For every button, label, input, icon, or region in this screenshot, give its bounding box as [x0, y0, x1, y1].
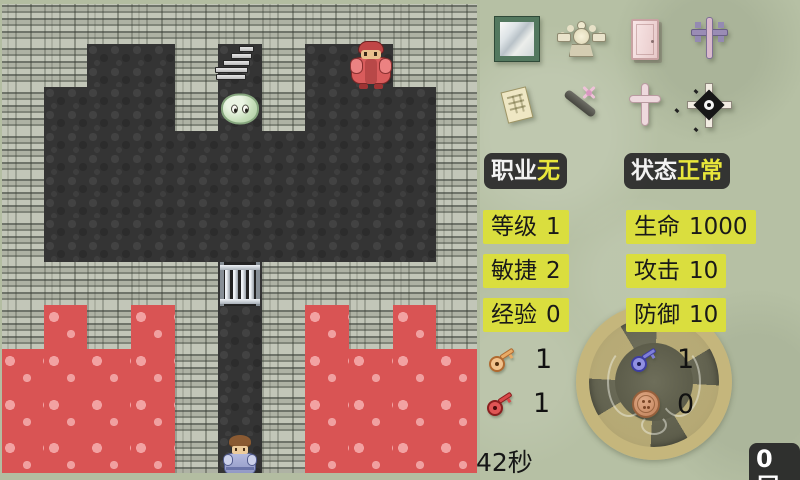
tile-light-floor[interactable] — [349, 262, 393, 306]
stat-badge-attack: 攻击10 — [626, 254, 726, 288]
stair-step — [216, 74, 246, 80]
tile-light-floor[interactable] — [436, 131, 480, 175]
slime-eye — [242, 105, 249, 114]
gate-bar — [225, 265, 230, 303]
tile-light-floor[interactable] — [131, 0, 175, 44]
stair-step — [215, 67, 248, 73]
tile-light-floor[interactable] — [349, 0, 393, 44]
tile-light-floor[interactable] — [0, 0, 44, 44]
tile-light-floor[interactable] — [436, 44, 480, 88]
hero-belt — [226, 467, 254, 470]
tile-light-floor[interactable] — [436, 218, 480, 262]
coin-row: 0 — [632, 388, 694, 420]
map-edge-left — [0, 0, 2, 480]
item-slot-winged-medal[interactable] — [552, 10, 610, 68]
tile-dark-floor[interactable] — [262, 175, 306, 219]
tile-light-floor[interactable] — [393, 44, 437, 88]
item-slot-compass-star[interactable] — [680, 76, 738, 134]
tile-dark-floor[interactable] — [87, 175, 131, 219]
red-key-icon — [486, 388, 516, 418]
blue-key-icon — [630, 344, 660, 374]
tile-red-guard-monster[interactable] — [349, 44, 393, 88]
tile-dark-floor[interactable] — [305, 218, 349, 262]
blue-key-row: 1 — [630, 343, 694, 375]
tile-dark-floor[interactable] — [305, 131, 349, 175]
item-slot-mirror[interactable] — [488, 10, 546, 68]
red-key-row: 1 — [486, 387, 550, 419]
item-slot-pickaxe[interactable] — [552, 76, 610, 134]
tile-light-floor[interactable] — [175, 44, 219, 88]
tile-lava[interactable] — [131, 393, 175, 437]
tile-dark-floor[interactable] — [349, 87, 393, 131]
tile-light-floor[interactable] — [87, 305, 131, 349]
purple-cross-item-icon — [687, 16, 732, 62]
tile-dark-floor[interactable] — [393, 131, 437, 175]
tile-dark-floor[interactable] — [262, 131, 306, 175]
timer-label: 42秒 — [476, 449, 533, 477]
stair-step — [231, 53, 252, 59]
tile-light-floor[interactable] — [0, 218, 44, 262]
tile-light-floor[interactable] — [436, 305, 480, 349]
guard-shoulder — [350, 58, 363, 74]
tile-dark-floor[interactable] — [218, 349, 262, 393]
tile-dark-floor[interactable] — [87, 131, 131, 175]
tile-lava[interactable] — [0, 393, 44, 437]
tile-dark-floor[interactable] — [44, 175, 88, 219]
tile-dark-floor[interactable] — [305, 175, 349, 219]
tile-lava[interactable] — [44, 305, 88, 349]
status-value: 正常 — [677, 160, 723, 183]
stat-badge-level: 等级1 — [483, 210, 569, 244]
compass-star-item-icon — [687, 83, 732, 128]
tile-light-floor[interactable] — [44, 44, 88, 88]
tile-lava[interactable] — [305, 349, 349, 393]
red-guard-monster[interactable] — [350, 41, 392, 89]
tile-dark-floor[interactable] — [175, 218, 219, 262]
mirror-item-icon — [495, 17, 539, 61]
hero-shoulder — [223, 454, 233, 466]
tile-lava[interactable] — [305, 393, 349, 437]
tile-light-floor[interactable] — [305, 0, 349, 44]
stat-badge-hp: 生命1000 — [626, 210, 756, 244]
job-label: 职业 — [491, 160, 537, 183]
tile-light-floor[interactable] — [175, 393, 219, 437]
game-screen: 职业无 状态正常 等级1 生命1000 敏捷2 攻击10 经验0 防御10 1 — [0, 0, 800, 480]
tile-dark-floor[interactable] — [87, 44, 131, 88]
tile-light-floor[interactable] — [0, 175, 44, 219]
tile-dark-floor[interactable] — [218, 175, 262, 219]
gate-bar — [249, 265, 254, 303]
tile-light-floor[interactable] — [262, 87, 306, 131]
map-edge-right — [477, 0, 480, 480]
tile-lava[interactable] — [436, 349, 480, 393]
stat-badge-agility: 敏捷2 — [483, 254, 569, 288]
tile-dark-floor[interactable] — [349, 131, 393, 175]
tile-light-floor[interactable] — [175, 305, 219, 349]
tile-light-floor[interactable] — [175, 262, 219, 306]
tile-dark-floor[interactable] — [131, 131, 175, 175]
gate-rail — [220, 265, 260, 270]
tile-light-floor[interactable] — [393, 262, 437, 306]
tile-light-floor[interactable] — [262, 44, 306, 88]
tile-light-floor[interactable] — [131, 262, 175, 306]
slime-monster[interactable] — [221, 94, 259, 125]
iron-gate[interactable] — [220, 262, 260, 306]
item-slot-door[interactable] — [616, 10, 674, 68]
tile-lava[interactable] — [393, 393, 437, 437]
tile-dark-floor[interactable] — [131, 218, 175, 262]
stairs-up[interactable] — [220, 46, 260, 84]
tile-lava[interactable] — [44, 393, 88, 437]
tile-light-floor[interactable] — [305, 262, 349, 306]
tile-dark-floor[interactable] — [87, 218, 131, 262]
tile-light-floor[interactable] — [0, 87, 44, 131]
hero-face — [232, 446, 248, 454]
job-badge: 职业无 — [484, 153, 567, 189]
tile-dark-floor[interactable] — [218, 131, 262, 175]
map-edge-top — [0, 0, 480, 4]
tile-dark-floor[interactable] — [44, 87, 88, 131]
tile-light-floor[interactable] — [262, 262, 306, 306]
stat-badge-exp: 经验0 — [483, 298, 569, 332]
floor-map — [0, 0, 480, 480]
tile-lava[interactable] — [393, 305, 437, 349]
tile-light-floor[interactable] — [436, 262, 480, 306]
guard-shoulder — [379, 58, 392, 74]
tile-dark-floor[interactable] — [131, 175, 175, 219]
tile-light-floor[interactable] — [0, 262, 44, 306]
coin-icon — [632, 390, 660, 418]
tile-lava[interactable] — [131, 305, 175, 349]
tile-light-floor[interactable] — [262, 0, 306, 44]
yellow-key-row: 1 — [488, 343, 552, 375]
status-label: 状态 — [631, 160, 677, 183]
slime-eye — [231, 105, 238, 114]
tile-dark-floor[interactable] — [349, 218, 393, 262]
tile-lava[interactable] — [131, 349, 175, 393]
yellow-key-icon — [488, 344, 518, 374]
stair-step — [223, 60, 250, 66]
tile-light-floor[interactable] — [436, 0, 480, 44]
tile-lava[interactable] — [349, 393, 393, 437]
gate-bar — [241, 265, 246, 303]
tile-dark-floor[interactable] — [175, 175, 219, 219]
tile-lava[interactable] — [44, 349, 88, 393]
guard-robe-stripe — [365, 59, 377, 84]
item-slot-scroll[interactable] — [488, 76, 546, 134]
tile-dark-floor[interactable] — [218, 393, 262, 437]
tile-light-floor[interactable] — [393, 0, 437, 44]
tile-stairs-up[interactable] — [218, 44, 262, 88]
yellow-key-count: 1 — [535, 346, 552, 373]
tile-lava[interactable] — [393, 349, 437, 393]
red-key-count: 1 — [533, 390, 550, 417]
tile-dark-floor[interactable] — [393, 175, 437, 219]
blue-key-count: 1 — [677, 346, 694, 373]
tile-slime-monster[interactable] — [218, 87, 262, 131]
coin-count: 0 — [677, 391, 694, 418]
floor-badge: 0层 — [749, 443, 800, 480]
tile-light-floor[interactable] — [436, 87, 480, 131]
item-slot-purple-cross[interactable] — [680, 10, 738, 68]
tile-iron-gate[interactable] — [218, 262, 262, 306]
tile-light-floor[interactable] — [262, 393, 306, 437]
tile-light-floor[interactable] — [0, 131, 44, 175]
tile-light-floor[interactable] — [262, 349, 306, 393]
job-value: 无 — [537, 160, 560, 183]
tile-dark-floor[interactable] — [349, 175, 393, 219]
status-panel: 职业无 状态正常 等级1 生命1000 敏捷2 攻击10 经验0 防御10 1 — [480, 0, 800, 480]
door-item-icon — [631, 19, 659, 60]
map-grid — [0, 0, 480, 480]
pickaxe-item-icon — [558, 82, 604, 128]
tile-light-floor[interactable] — [218, 0, 262, 44]
scroll-item-icon — [501, 86, 534, 123]
tile-dark-floor[interactable] — [393, 87, 437, 131]
guard-face — [361, 50, 381, 59]
tile-light-floor[interactable] — [349, 305, 393, 349]
status-badge: 状态正常 — [624, 153, 730, 189]
tile-lava[interactable] — [87, 393, 131, 437]
gate-rail — [220, 299, 260, 304]
tile-light-floor[interactable] — [0, 44, 44, 88]
tile-lava[interactable] — [349, 349, 393, 393]
tile-dark-floor[interactable] — [131, 44, 175, 88]
tile-dark-floor[interactable] — [218, 218, 262, 262]
tile-light-floor[interactable] — [44, 262, 88, 306]
stat-badge-defense: 防御10 — [626, 298, 726, 332]
tile-dark-floor[interactable] — [44, 218, 88, 262]
tile-dark-floor[interactable] — [175, 131, 219, 175]
tile-dark-floor[interactable] — [305, 87, 349, 131]
pink-cross-item-icon — [625, 82, 665, 128]
hero-shoulder — [247, 454, 257, 466]
tile-dark-floor[interactable] — [44, 131, 88, 175]
tile-lava[interactable] — [0, 349, 44, 393]
tile-light-floor[interactable] — [87, 0, 131, 44]
guard-foot — [359, 84, 368, 89]
item-slot-pink-cross[interactable] — [616, 76, 674, 134]
tile-lava[interactable] — [305, 305, 349, 349]
tile-light-floor[interactable] — [175, 87, 219, 131]
tile-dark-floor[interactable] — [393, 218, 437, 262]
winged-medal-item-icon — [557, 19, 606, 59]
tile-dark-floor[interactable] — [87, 87, 131, 131]
tile-dark-floor[interactable] — [262, 218, 306, 262]
tile-light-floor[interactable] — [436, 175, 480, 219]
tile-lava[interactable] — [87, 349, 131, 393]
tile-light-floor[interactable] — [175, 349, 219, 393]
tile-light-floor[interactable] — [44, 0, 88, 44]
tile-light-floor[interactable] — [262, 305, 306, 349]
tile-dark-floor[interactable] — [305, 44, 349, 88]
tile-dark-floor[interactable] — [131, 87, 175, 131]
tile-dark-floor[interactable] — [218, 305, 262, 349]
guard-foot — [374, 84, 383, 89]
tile-lava[interactable] — [436, 393, 480, 437]
tile-light-floor[interactable] — [0, 305, 44, 349]
tile-light-floor[interactable] — [87, 262, 131, 306]
gate-bar — [233, 265, 238, 303]
stair-step — [239, 46, 254, 52]
tile-light-floor[interactable] — [175, 0, 219, 44]
map-edge-bottom — [0, 473, 480, 480]
